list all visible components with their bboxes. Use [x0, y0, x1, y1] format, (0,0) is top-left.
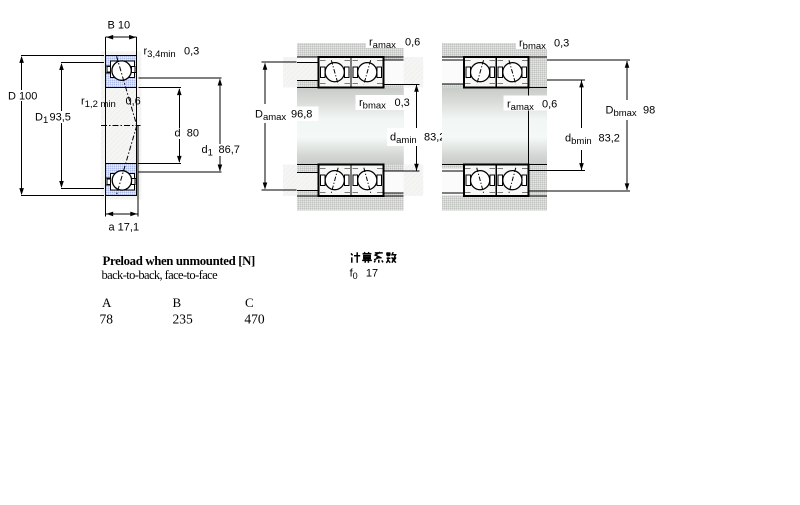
- svg-text:B: B: [173, 295, 182, 310]
- svg-text:0,6: 0,6: [126, 96, 141, 108]
- svg-text:86,7: 86,7: [219, 144, 240, 156]
- svg-text:235: 235: [173, 312, 194, 327]
- svg-text:83,2: 83,2: [599, 133, 620, 145]
- svg-text:98: 98: [643, 105, 655, 117]
- svg-text:17: 17: [366, 268, 378, 280]
- svg-text:C: C: [245, 295, 254, 310]
- svg-text:0,3: 0,3: [184, 46, 199, 58]
- svg-text:0,6: 0,6: [405, 37, 420, 49]
- svg-text:back-to-back, face-to-face: back-to-back, face-to-face: [102, 268, 219, 282]
- svg-text:78: 78: [100, 312, 114, 327]
- svg-text:B 10: B 10: [108, 20, 131, 32]
- svg-text:d 80: d 80: [175, 128, 199, 140]
- svg-text:Preload when unmounted [N]: Preload when unmounted [N]: [103, 254, 256, 268]
- svg-text:0,6: 0,6: [542, 99, 557, 111]
- svg-text:D 100: D 100: [8, 91, 37, 103]
- svg-text:A: A: [102, 295, 112, 310]
- svg-text:0,3: 0,3: [395, 97, 410, 109]
- svg-text:0,3: 0,3: [554, 38, 569, 50]
- svg-text:470: 470: [244, 312, 265, 327]
- svg-text:93,5: 93,5: [50, 112, 71, 124]
- svg-text:96,8: 96,8: [291, 109, 312, 121]
- svg-text:a 17,1: a 17,1: [109, 222, 140, 234]
